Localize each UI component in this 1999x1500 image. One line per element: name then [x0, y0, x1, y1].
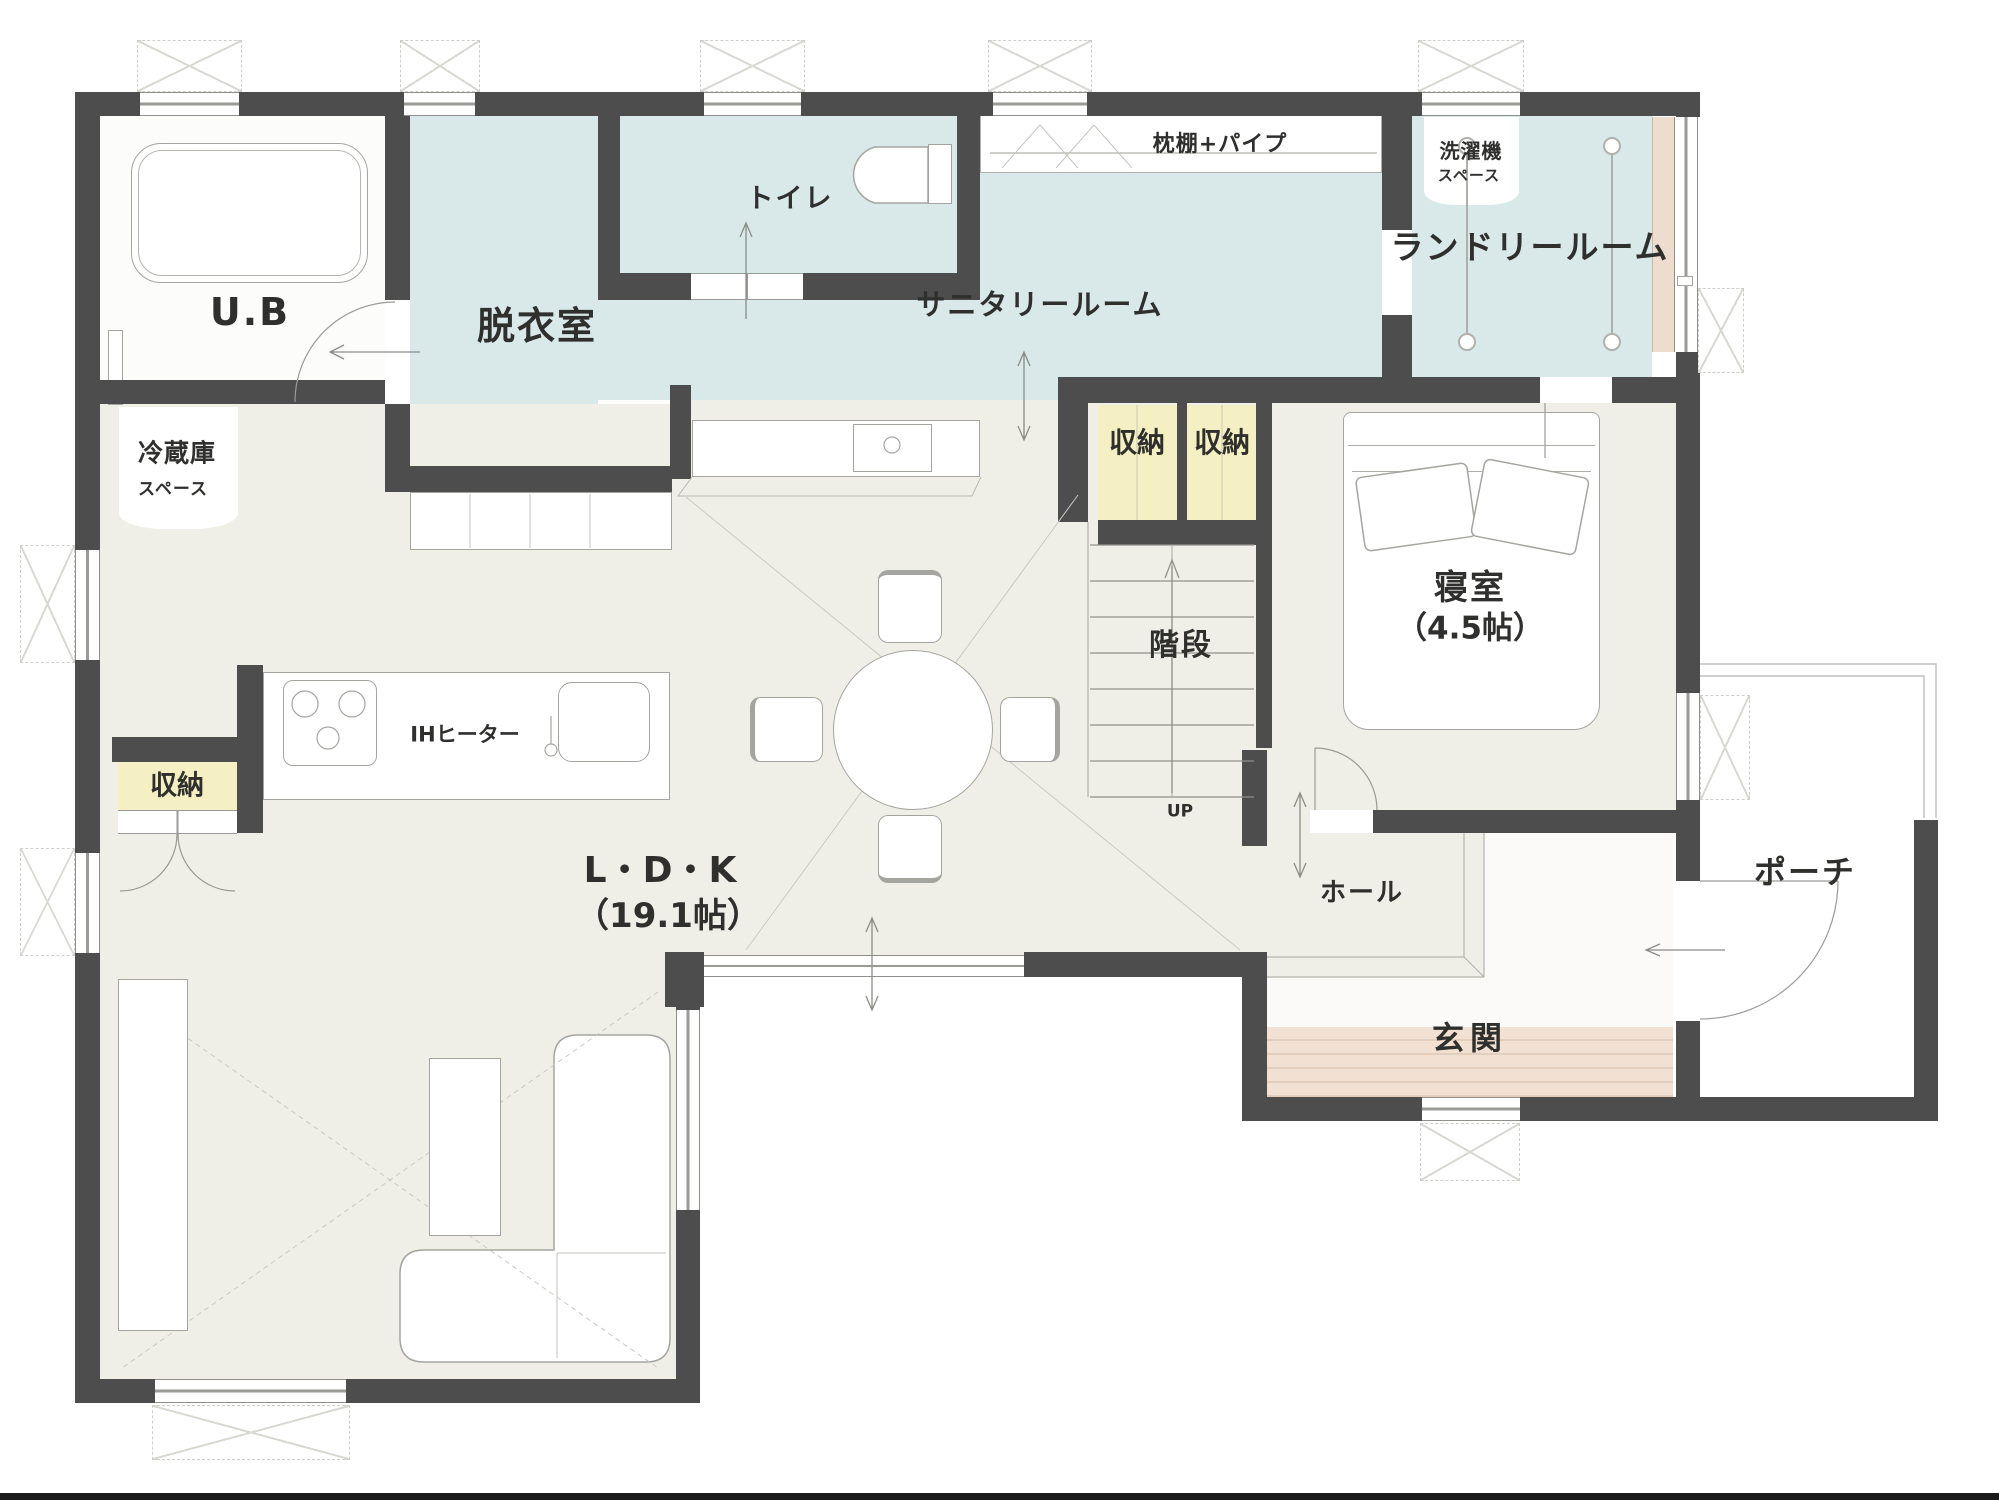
- shutter-box-west-2: [20, 848, 75, 956]
- label-washer-1: 洗濯機: [1440, 141, 1503, 161]
- wall-porch-east: [1914, 820, 1938, 1121]
- label-fridge-1: 冷蔵庫: [138, 441, 216, 466]
- label-entrance: 玄関: [1432, 1022, 1508, 1054]
- label-ub: U.B: [210, 293, 290, 331]
- washbasin-sink: [853, 424, 932, 472]
- window-west-kitchen: [75, 550, 100, 660]
- coffee-table: [429, 1058, 501, 1236]
- label-dressing: 脱衣室: [477, 307, 597, 345]
- floor-plan: U.B 脱衣室 トイレ サニタリールーム 枕棚+パイプ 洗濯機 スペース ランド…: [0, 0, 1999, 1500]
- kitchen-sink: [558, 682, 650, 762]
- laundry-door-handle: [1677, 276, 1693, 286]
- wall-kitchen-closet-east: [237, 665, 263, 833]
- shutter-box-north-5: [1418, 40, 1524, 92]
- dining-chair-south: [878, 815, 942, 883]
- label-hall: ホール: [1320, 880, 1404, 906]
- window-north-toilet: [704, 92, 801, 116]
- shutter-box-west-1: [20, 545, 75, 663]
- bathtub: [131, 143, 368, 283]
- label-closet-b: 収納: [1194, 429, 1250, 457]
- ih-stove: [283, 680, 377, 766]
- wall-ldk-south: [1024, 952, 1242, 977]
- wall-south-entrance-porch: [1242, 1097, 1938, 1121]
- wall-east-low: [1676, 800, 1700, 881]
- window-entrance-south: [1422, 1097, 1520, 1121]
- label-fridge-2: スペース: [138, 482, 208, 499]
- label-pillow-shelf: 枕棚+パイプ: [1153, 134, 1287, 156]
- wall-ub-south: [75, 380, 385, 404]
- shutter-box-north-2: [400, 40, 480, 92]
- wall-stairs-stub: [1058, 377, 1088, 522]
- wall-sanitary-laundry-upper: [1382, 94, 1412, 230]
- wall-toilet-south-west: [598, 273, 691, 300]
- window-north-laundry: [1422, 92, 1520, 116]
- wall-east-top: [1676, 92, 1700, 117]
- door-kitchen-closet: [118, 810, 237, 834]
- wall-kitchen-closet-north: [112, 737, 237, 762]
- wall-entrance-west: [1242, 952, 1267, 1121]
- wall-stairs-bedroom: [1256, 403, 1272, 748]
- wall-closet-divider: [1177, 398, 1187, 520]
- wall-post-ldk: [665, 952, 704, 1007]
- wall-ub-east: [385, 94, 410, 300]
- entrance-door-gap: [1676, 881, 1700, 1021]
- label-closet-kitchen: 収納: [150, 773, 204, 800]
- wall-sanitary-laundry-lower: [1382, 315, 1412, 403]
- window-north-ub: [140, 92, 239, 116]
- wall-west: [75, 92, 100, 1403]
- label-closet-a: 収納: [1109, 429, 1165, 457]
- label-ih-heater: IHヒーター: [410, 725, 519, 746]
- window-north-sanitary: [993, 92, 1087, 116]
- label-toilet: トイレ: [747, 186, 834, 213]
- wall-dressing-south: [385, 466, 672, 492]
- wall-sanitary-stub: [670, 385, 691, 479]
- window-bedroom-east: [1676, 693, 1700, 800]
- label-bedroom: 寝室: [1434, 571, 1506, 605]
- entrance-door-arc: [1700, 881, 1838, 1019]
- window-north-dressing: [404, 92, 475, 116]
- window-ldk-south-sliding: [704, 955, 1024, 977]
- door-toilet: [691, 273, 803, 300]
- door-ub: [385, 300, 410, 402]
- label-ldk: L・D・K: [584, 853, 737, 889]
- shutter-box-north-3: [700, 40, 805, 92]
- kitchen-back-counter: [410, 492, 672, 550]
- window-south-living: [155, 1379, 346, 1403]
- dining-chair-west: [750, 697, 823, 762]
- label-stairs: 階段: [1149, 631, 1213, 661]
- floor-closet-a: [1098, 405, 1177, 520]
- wall-hall-west-upper: [1242, 750, 1267, 846]
- window-living-east: [676, 1010, 700, 1210]
- window-west-ldk: [75, 853, 100, 953]
- wall-closet-south: [1098, 520, 1268, 545]
- dining-chair-north: [878, 570, 942, 643]
- wall-east-mid: [1676, 352, 1700, 693]
- label-ldk-size: （19.1帖）: [575, 899, 761, 933]
- toilet-tank: [928, 144, 952, 204]
- dining-chair-east: [1000, 697, 1060, 762]
- label-washer-2: スペース: [1438, 169, 1500, 184]
- shutter-box-north-4: [988, 40, 1092, 92]
- shutter-box-south-living: [152, 1405, 350, 1460]
- fridge-space-box: [119, 407, 238, 529]
- label-porch: ポーチ: [1754, 856, 1856, 888]
- tv-board: [118, 979, 188, 1331]
- dining-table: [833, 650, 993, 810]
- wall-bedroom-south: [1373, 810, 1676, 833]
- wall-east-bottom: [1676, 1021, 1700, 1121]
- wall-toilet-west: [598, 94, 620, 300]
- wall-toilet-east: [957, 94, 980, 300]
- shutter-box-bedroom-east: [1700, 695, 1750, 800]
- shutter-box-north-1: [137, 40, 242, 92]
- step-box-laundry-east: [1698, 288, 1744, 373]
- door-laundry-bedroom: [1540, 377, 1612, 403]
- shutter-box-entrance: [1420, 1123, 1520, 1181]
- window-laundry-east-sliding: [1674, 117, 1698, 352]
- washbasin-counter: [692, 420, 980, 477]
- label-laundry: ランドリールーム: [1390, 231, 1669, 264]
- floor-closet-b: [1187, 405, 1256, 520]
- door-bedroom: [1310, 810, 1373, 833]
- label-stairs-up: UP: [1167, 804, 1193, 821]
- bottom-edge-bar: [0, 1493, 1999, 1500]
- label-bedroom-size: （4.5帖）: [1396, 614, 1544, 645]
- label-sanitary: サニタリールーム: [916, 291, 1163, 320]
